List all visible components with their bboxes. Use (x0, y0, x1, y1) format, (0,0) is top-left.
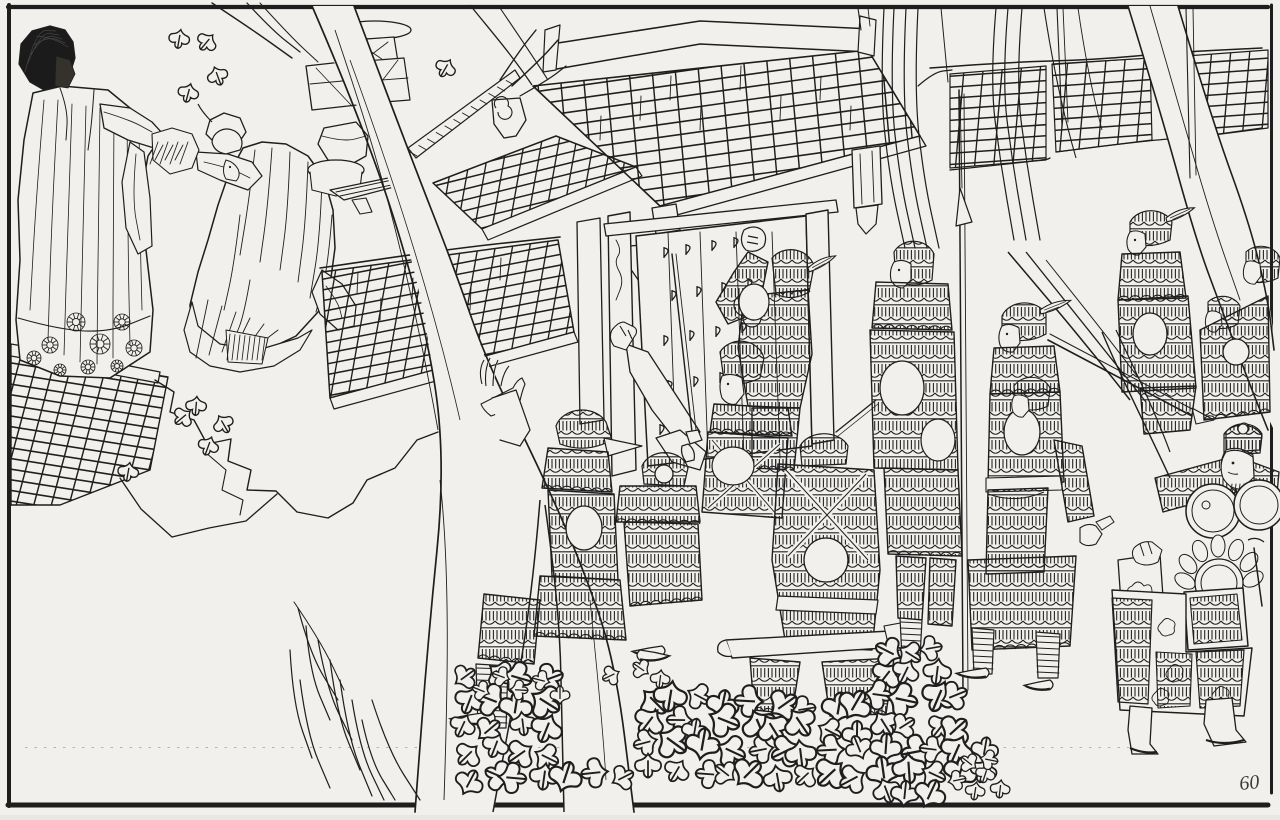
svg-text:60: 60 (1238, 771, 1260, 795)
